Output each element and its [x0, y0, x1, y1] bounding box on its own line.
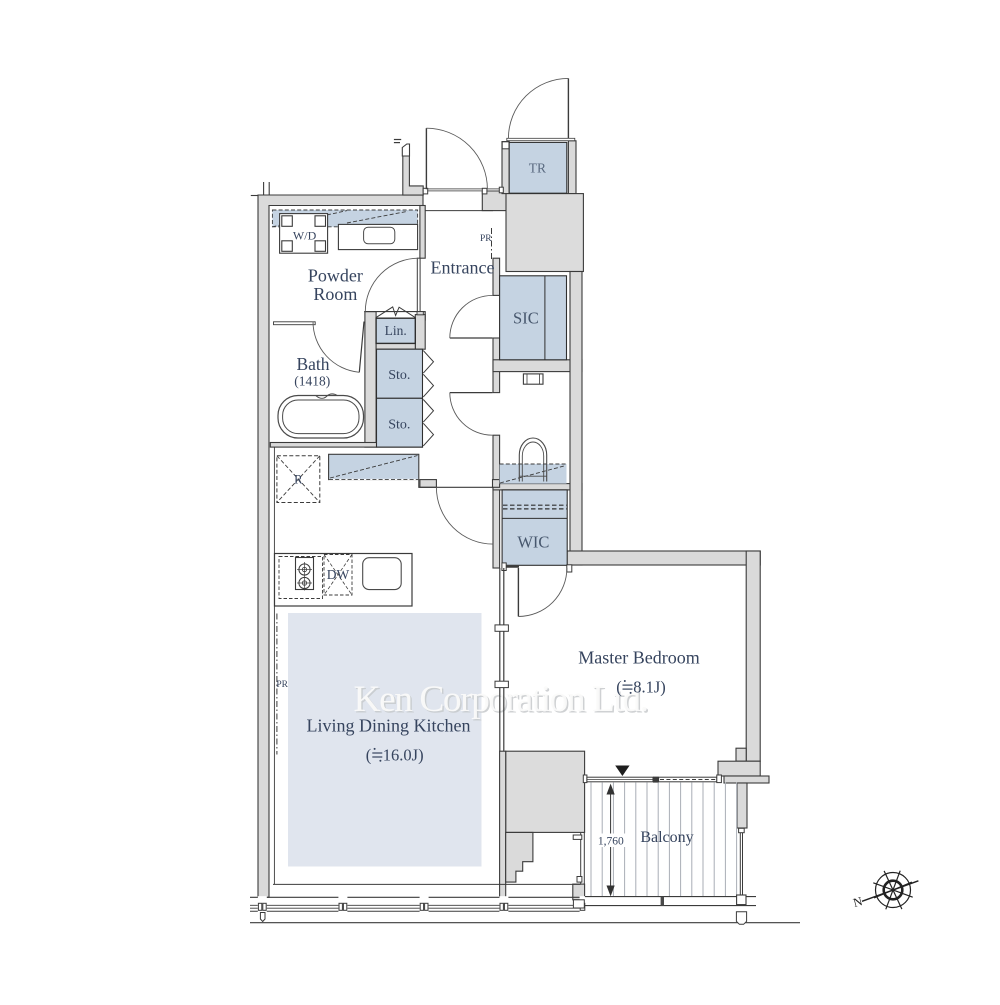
svg-text:(1418): (1418) [294, 373, 330, 388]
svg-text:PR: PR [480, 234, 492, 244]
svg-text:(: ( [616, 677, 622, 696]
svg-text:16.0J): 16.0J) [383, 745, 424, 764]
svg-text:Entrance: Entrance [431, 257, 495, 277]
svg-text:Bath: Bath [296, 354, 329, 374]
svg-text:(: ( [366, 745, 372, 764]
svg-text:1,760: 1,760 [598, 835, 624, 847]
svg-text:Sto.: Sto. [388, 368, 410, 383]
svg-text:WIC: WIC [517, 533, 549, 552]
svg-text:SIC: SIC [513, 309, 539, 328]
svg-text:DW: DW [327, 567, 350, 582]
svg-text:PR: PR [276, 680, 288, 690]
svg-text:Powder: Powder [308, 266, 363, 286]
svg-text:Lin.: Lin. [385, 323, 407, 338]
svg-text:8.1J): 8.1J) [633, 677, 666, 696]
svg-text:TR: TR [529, 160, 546, 175]
svg-text:Master Bedroom: Master Bedroom [578, 647, 699, 667]
svg-text:Room: Room [313, 284, 357, 304]
svg-text:Sto.: Sto. [388, 418, 410, 433]
svg-text:R: R [294, 472, 303, 486]
svg-text:W/D: W/D [293, 229, 317, 243]
svg-text:Balcony: Balcony [640, 829, 693, 846]
svg-text:Living Dining Kitchen: Living Dining Kitchen [307, 715, 471, 735]
